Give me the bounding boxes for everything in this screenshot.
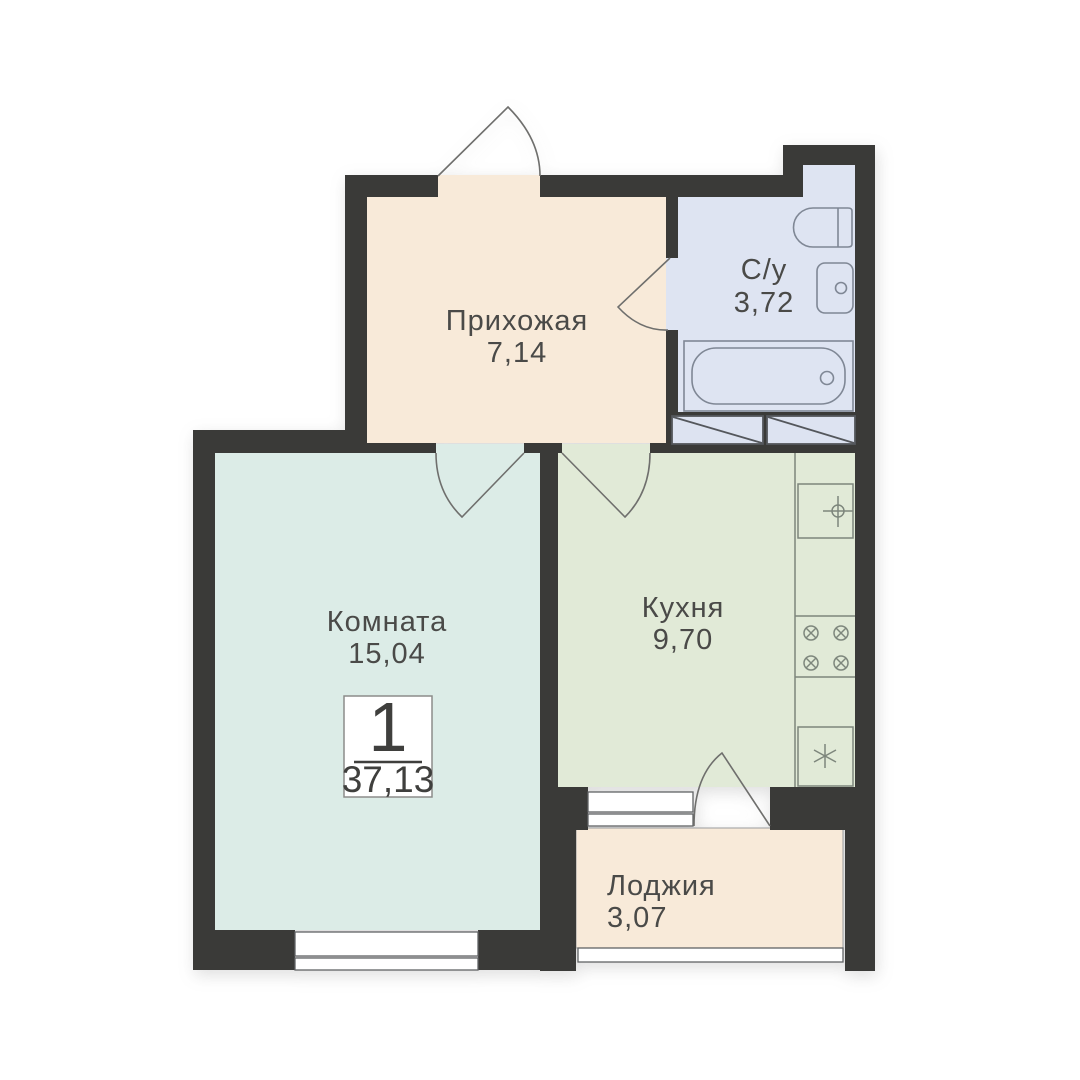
wall-segment	[193, 430, 367, 453]
room-area-loggia: 3,07	[607, 902, 667, 934]
room-label-kitchen: Кухня	[642, 592, 725, 624]
wall-segment	[367, 443, 436, 453]
wall-segment	[478, 930, 576, 970]
window-icon	[295, 932, 478, 956]
entrance-door-swing	[438, 107, 540, 176]
wall-segment	[855, 145, 875, 790]
wall-segment	[193, 430, 215, 970]
wall-segment	[193, 930, 295, 970]
unit-total-area: 37,13	[342, 759, 435, 800]
bathroom-door-gap	[666, 258, 678, 330]
wall-segment	[783, 165, 803, 197]
room-living-floor	[215, 444, 540, 930]
room-label-living: Комната	[327, 606, 448, 638]
room-area-living: 15,04	[348, 638, 426, 670]
window-sill	[588, 814, 693, 826]
wall-segment	[345, 175, 367, 443]
wall-segment	[770, 787, 875, 830]
wall-segment	[666, 197, 678, 258]
room-label-loggia: Лоджия	[607, 870, 716, 902]
unit-rooms-count: 1	[369, 688, 408, 766]
vent-shafts	[672, 416, 855, 444]
room-area-hallway: 7,14	[487, 337, 547, 369]
floor-plan-page: Прихожая 7,14 С/у 3,72 Комната 15,04 Кух…	[0, 0, 1080, 1080]
window-icon	[588, 792, 693, 812]
room-area-bathroom: 3,72	[734, 287, 794, 319]
floor-plan: Прихожая 7,14 С/у 3,72 Комната 15,04 Кух…	[0, 0, 1080, 1080]
room-label-hallway: Прихожая	[446, 305, 588, 337]
wall-segment	[540, 443, 558, 787]
room-label-bathroom: С/у	[741, 254, 788, 286]
loggia-glazing	[578, 948, 843, 962]
room-area-kitchen: 9,70	[653, 624, 713, 656]
wall-segment	[558, 787, 588, 830]
wall-segment	[540, 175, 785, 197]
window-sill	[295, 958, 478, 970]
unit-badge: 1 37,13	[342, 688, 435, 800]
